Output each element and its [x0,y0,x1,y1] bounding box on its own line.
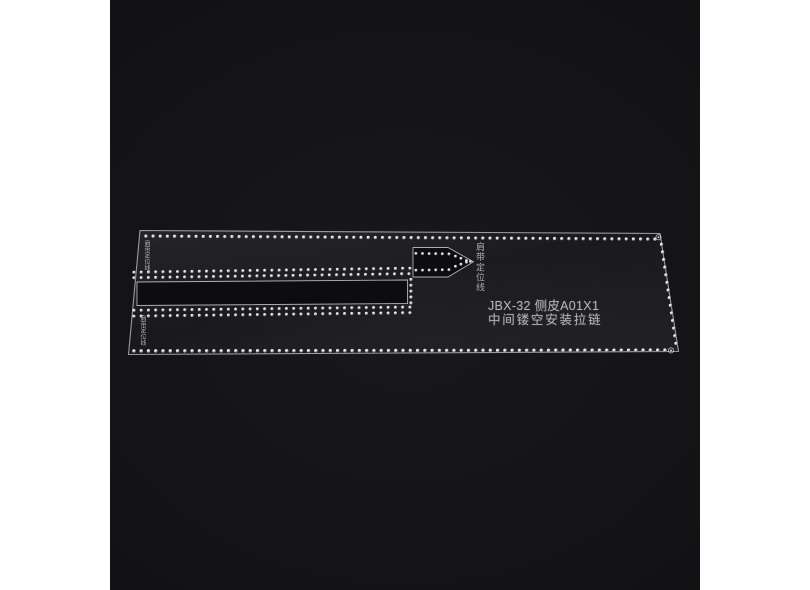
description-text: 中间镂空安装拉链 [488,314,602,327]
arrow-tip-hole [469,260,472,263]
label-top-left-vertical: 肩带定位线 [142,240,151,271]
zipper-slot-cutout [137,280,408,306]
label-arrow-vertical: 肩带定位线 [474,242,487,293]
product-photo-stage: 肩带定位线 肩带定位线 肩带定位线 JBX-32 侧皮A01X1 中间镂空安装拉… [0,0,810,590]
label-bottom-left-vertical: 肩带定位线 [138,315,147,346]
engraved-text-block: JBX-32 侧皮A01X1 中间镂空安装拉链 [488,300,602,327]
model-number-text: JBX-32 侧皮A01X1 [488,300,602,313]
template-svg [0,0,810,590]
